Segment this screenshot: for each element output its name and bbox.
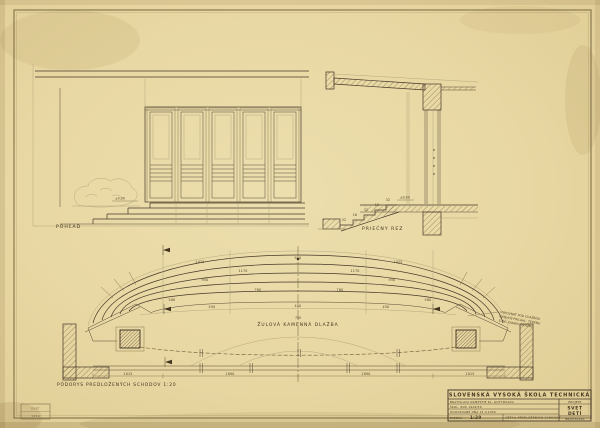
axis-flag-marker [433, 307, 440, 312]
dim-label: 1890 [225, 372, 234, 376]
dim-label: 950 [295, 256, 302, 260]
drawing-sheet: ±0,00 POHĽAD ±0,00 [0, 0, 600, 428]
title-row2: ŠKOL. ROK 1949/50 [450, 404, 482, 409]
plan-dim-ticks [93, 349, 505, 379]
dim-label: 1890 [361, 372, 370, 376]
section-label: PRIEČNY REZ [362, 225, 403, 232]
dim-label: 1015 [465, 372, 474, 376]
section-level-mark: ±0,00 [400, 196, 410, 200]
elevation-view: ±0,00 POHĽAD [33, 64, 309, 230]
dim-label: 450 [295, 304, 302, 308]
dim-label: 450 [383, 305, 390, 309]
door-panel [178, 108, 206, 202]
title-city: BRATISLAVA [565, 417, 584, 421]
plan-label: PÔDORYS PREDLOŽENÝCH SCHODOV 1:20 [57, 380, 176, 388]
door-panel [147, 108, 175, 202]
stamp-line1: SVŠT [31, 406, 40, 411]
dim-label: 1425 [393, 260, 402, 264]
door-panel [240, 108, 268, 202]
dim-label: 16 [375, 203, 380, 207]
dim-label: 450 [209, 305, 216, 309]
drawing-title: DETAIL PREDLOŽENÝCH SCHODOV [506, 415, 561, 420]
title-school: SLOVENSKÁ VYSOKÁ ŠKOLA TECHNICKÁ [449, 392, 590, 399]
dim-label: 950 [389, 278, 396, 282]
dim-label: 1170 [350, 269, 359, 273]
title-row3: ODOVZDANÉ DŇA 15.V.1950 [450, 409, 496, 414]
door-panel [209, 108, 237, 202]
drawing-canvas: ±0,00 POHĽAD ±0,00 [0, 0, 600, 428]
dim-label: 760 [337, 288, 344, 292]
shrub-sketch [72, 178, 140, 207]
paving-label: ŽULOVÁ KAMENNÁ DLAŽBA [257, 320, 338, 328]
elevation-steps [33, 203, 309, 226]
elevation-label: POHĽAD [56, 224, 81, 230]
scale-label: MIERKA [450, 416, 462, 420]
dim-label: 580 [425, 298, 432, 302]
door-panel [271, 108, 299, 202]
dim-label: 580 [169, 298, 176, 302]
project-name-line1: SVET [567, 406, 582, 412]
title-block: SLOVENSKÁ VYSOKÁ ŠKOLA TECHNICKÁ BRATISL… [448, 390, 591, 421]
axis-flag-marker [165, 360, 172, 365]
project-header: PROJEKT [568, 400, 582, 404]
door-panels [147, 108, 299, 202]
dim-label: 1170 [238, 269, 247, 273]
paving-level: 750 [295, 316, 301, 320]
scale-value: 1:20 [470, 415, 482, 420]
dim-label: 32 [364, 208, 369, 212]
stamp-line2: 1950 [31, 414, 40, 418]
dim-label: 32 [342, 218, 347, 222]
axis-flag-marker [163, 248, 170, 253]
section-view: ±0,00 3216321632 PRIEČNY REZ [318, 72, 478, 235]
dim-label: 16 [353, 213, 358, 217]
dim-label: 760 [255, 288, 262, 292]
plan-view: 750 ŽULOVÁ KAMENNÁ DLAŽBA 14259501425117… [57, 245, 542, 388]
dim-label: 950 [202, 278, 209, 282]
dim-label: 32 [386, 198, 391, 202]
title-row1: BRATISLAVA NÁMESTIE KL. GOTTWALDA [450, 399, 514, 404]
axis-flag-marker [164, 307, 171, 312]
elevation-level-mark: ±0,00 [115, 197, 125, 201]
dim-label: 1425 [195, 260, 204, 264]
dim-label: 1015 [123, 372, 132, 376]
